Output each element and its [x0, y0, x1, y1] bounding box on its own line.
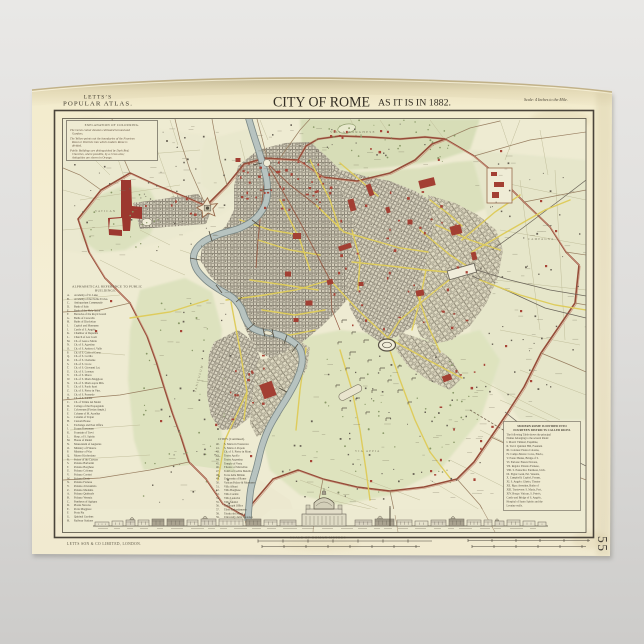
- svg-text:AS IT IS IN 1882.: AS IT IS IN 1882.: [378, 98, 451, 108]
- svg-text:SCALE OF ROMAN METRES: SCALE OF ROMAN METRES: [290, 536, 346, 540]
- svg-text:POPULAR ATLAS.: POPULAR ATLAS.: [63, 101, 133, 108]
- svg-text:Scale: 4 Inches to the Mile.: Scale: 4 Inches to the Mile.: [524, 97, 568, 102]
- svg-text:CITY OF ROME: CITY OF ROME: [273, 95, 370, 111]
- svg-text:55: 55: [595, 536, 610, 553]
